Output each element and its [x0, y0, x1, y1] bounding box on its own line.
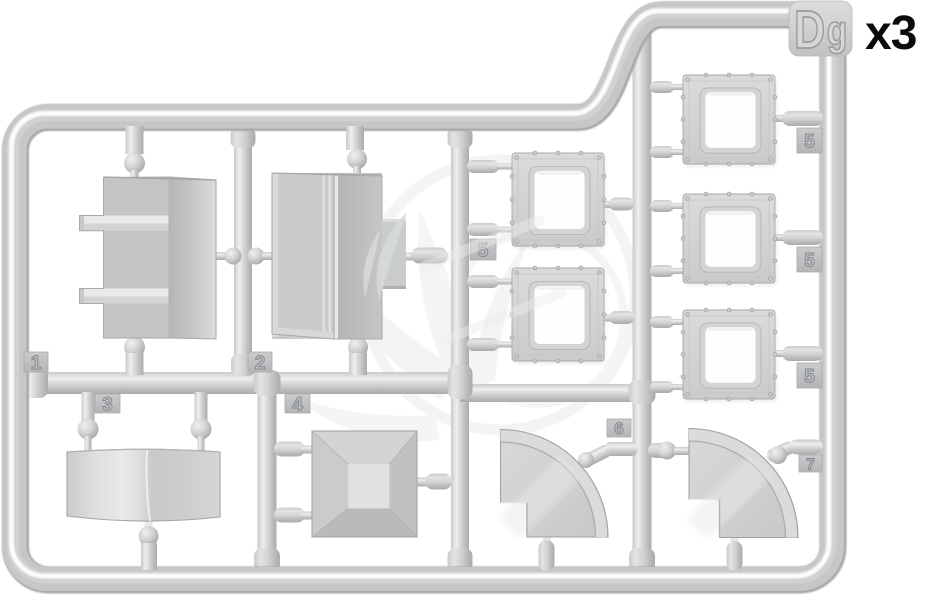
svg-text:4: 4 [292, 394, 303, 415]
svg-text:5: 5 [804, 250, 815, 271]
svg-text:g: g [827, 9, 848, 55]
svg-text:3: 3 [102, 394, 113, 415]
svg-text:x3: x3 [865, 7, 916, 60]
svg-text:7: 7 [806, 456, 815, 473]
svg-text:D: D [794, 1, 825, 61]
svg-text:5: 5 [804, 131, 815, 152]
svg-text:2: 2 [255, 353, 266, 374]
svg-text:1: 1 [31, 353, 42, 374]
svg-text:5: 5 [804, 366, 815, 387]
svg-text:6: 6 [614, 419, 623, 438]
